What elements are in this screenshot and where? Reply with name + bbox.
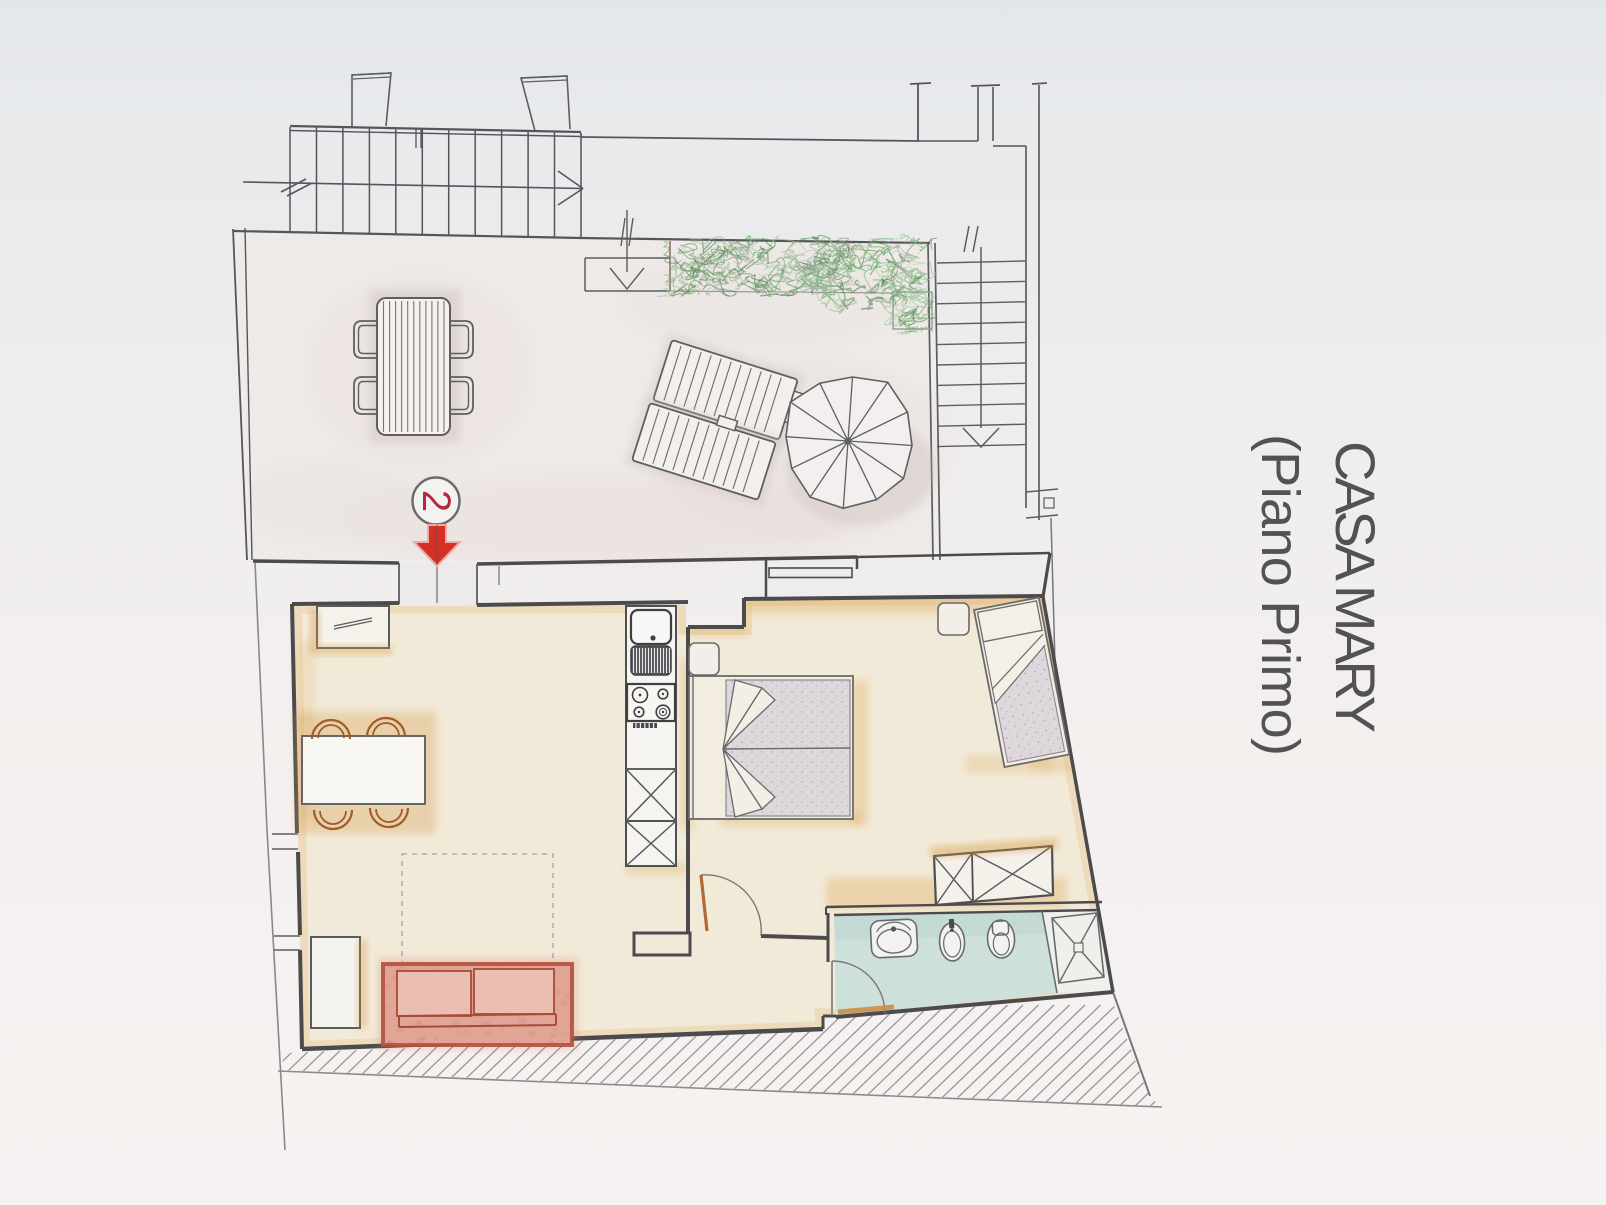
svg-text:CASA MARY: CASA MARY — [1324, 441, 1387, 735]
svg-text:2: 2 — [414, 490, 458, 512]
svg-text:(Piano Primo): (Piano Primo) — [1250, 434, 1310, 756]
